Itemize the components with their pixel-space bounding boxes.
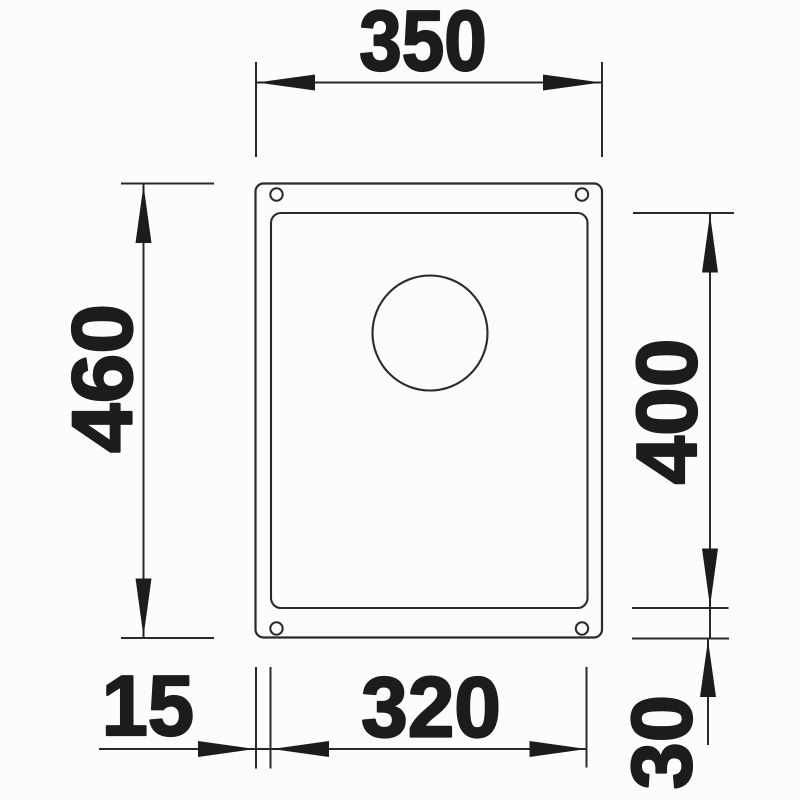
svg-text:400: 400	[620, 339, 715, 485]
svg-text:320: 320	[361, 660, 501, 755]
svg-text:30: 30	[615, 695, 710, 790]
svg-text:350: 350	[359, 0, 486, 89]
svg-text:15: 15	[102, 658, 194, 753]
svg-text:460: 460	[55, 304, 150, 453]
